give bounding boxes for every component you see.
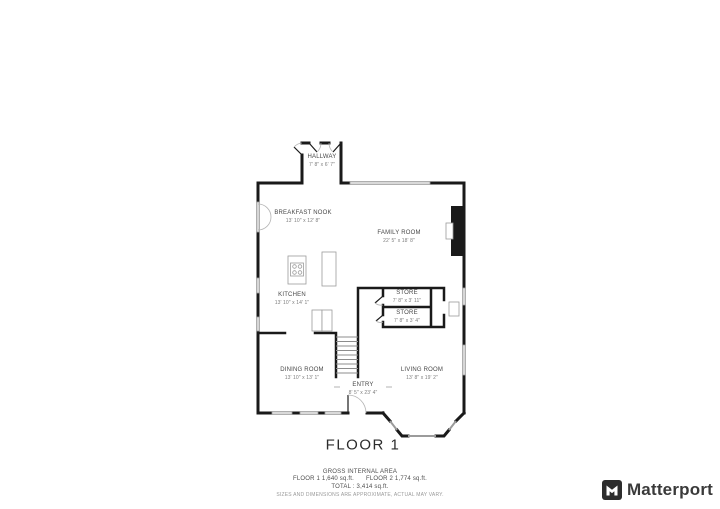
room-name: STORE (394, 310, 420, 318)
room-name: DINING ROOM (280, 367, 324, 375)
room-label-dining-room: DINING ROOM 13' 10" x 13' 1" (280, 367, 324, 381)
room-name: ENTRY (349, 382, 378, 390)
room-label-store-2: STORE 7' 8" x 3' 4" (394, 310, 420, 324)
staircase (336, 337, 358, 373)
room-dims: 7' 8" x 3' 11" (393, 298, 421, 304)
area-summary-floors: FLOOR 1 1,640 sq.ft. FLOOR 2 1,774 sq.ft… (276, 476, 443, 483)
room-label-breakfast-nook: BREAKFAST NOOK 13' 10" x 12' 8" (274, 210, 331, 224)
area-summary-heading: GROSS INTERNAL AREA (276, 469, 443, 476)
floor-plan-page: HALLWAY 7' 8" x 6' 7" BREAKFAST NOOK 13'… (0, 0, 720, 509)
fireplace (446, 206, 463, 256)
room-dims: 13' 10" x 13' 1" (280, 375, 324, 381)
room-dims: 22' 5" x 18' 8" (377, 238, 420, 244)
floor-plan-drawing (0, 0, 720, 509)
floor2-area: FLOOR 2 1,774 sq.ft. (366, 476, 427, 483)
matterport-icon (602, 480, 622, 500)
room-dims: 13' 10" x 14' 1" (275, 300, 310, 306)
room-name: KITCHEN (275, 292, 310, 300)
room-name: FAMILY ROOM (377, 230, 420, 238)
matterport-logo: Matterport (602, 480, 713, 500)
room-name: LIVING ROOM (401, 367, 443, 375)
room-dims: 13' 10" x 12' 8" (274, 218, 331, 224)
room-name: BREAKFAST NOOK (274, 210, 331, 218)
room-name: HALLWAY (308, 154, 337, 162)
room-dims: 8' 5" x 23' 4" (349, 390, 378, 396)
room-dims: 13' 8" x 19' 2" (401, 375, 443, 381)
room-dims: 7' 8" x 6' 7" (308, 162, 337, 168)
matterport-wordmark: Matterport (627, 480, 713, 500)
room-label-store-1: STORE 7' 8" x 3' 11" (393, 290, 421, 304)
disclaimer-text: SIZES AND DIMENSIONS ARE APPROXIMATE, AC… (276, 492, 443, 498)
room-label-entry: ENTRY 8' 5" x 23' 4" (349, 382, 378, 396)
floor-title: FLOOR 1 (326, 437, 401, 454)
room-label-kitchen: KITCHEN 13' 10" x 14' 1" (275, 292, 310, 306)
kitchen-fixtures (288, 252, 459, 331)
room-label-living-room: LIVING ROOM 13' 8" x 19' 2" (401, 367, 443, 381)
floor1-area: FLOOR 1 1,640 sq.ft. (293, 476, 354, 483)
room-label-family-room: FAMILY ROOM 22' 5" x 18' 8" (377, 230, 420, 244)
room-name: STORE (393, 290, 421, 298)
total-area: TOTAL : 3,414 sq.ft. (276, 484, 443, 491)
room-dims: 7' 8" x 3' 4" (394, 318, 420, 324)
area-summary: GROSS INTERNAL AREA FLOOR 1 1,640 sq.ft.… (276, 469, 443, 498)
room-label-hallway: HALLWAY 7' 8" x 6' 7" (308, 154, 337, 168)
